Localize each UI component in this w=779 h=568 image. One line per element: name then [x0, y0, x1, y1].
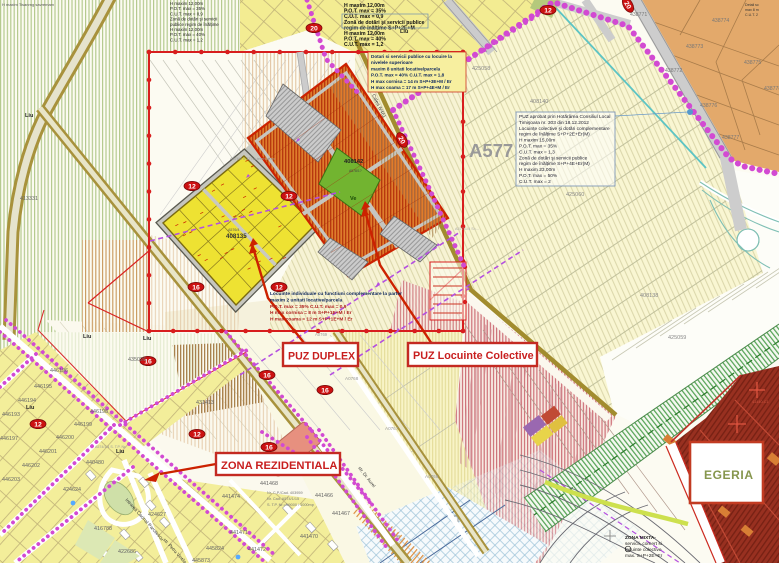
svg-text:P.O.T. max = 35% C.U.T. max: P.O.T. max = 35% C.U.T. max = 0,9 — [270, 304, 347, 310]
svg-text:Dotari si servicii publice cu: Dotari si servicii publice cu locuire la — [371, 54, 452, 59]
svg-text:Liu: Liu — [26, 405, 35, 411]
svg-text:Liu: Liu — [116, 449, 125, 455]
svg-text:20: 20 — [310, 25, 318, 32]
svg-text:A577/1/4 S=...: A577/1/4 S=... — [455, 227, 479, 231]
svg-text:408140: 408140 — [530, 99, 548, 105]
svg-text:446202: 446202 — [22, 463, 40, 469]
svg-text:438771: 438771 — [630, 12, 647, 18]
svg-text:nivelele superioare: nivelele superioare — [371, 60, 413, 65]
svg-text:441472: 441472 — [248, 547, 266, 553]
svg-text:C.U.T. max = 2: C.U.T. max = 2 — [519, 179, 551, 185]
svg-text:16: 16 — [321, 387, 329, 394]
svg-text:441467: 441467 — [332, 511, 350, 517]
svg-text:Ve: Ve — [350, 196, 356, 202]
svg-text:425059: 425059 — [668, 335, 686, 341]
svg-text:A0768: A0768 — [345, 376, 359, 381]
svg-text:max. S+P+2E+Er: max. S+P+2E+Er — [625, 553, 663, 559]
svg-text:A0766: A0766 — [425, 474, 439, 479]
svg-text:regim de înălțime S+P+4E+Er(M): regim de înălțime S+P+4E+Er(M) — [519, 161, 590, 167]
svg-text:PUZ aprobat prin Hotărârea Con: PUZ aprobat prin Hotărârea Consiliul Loc… — [519, 114, 610, 120]
svg-text:max 8 m: max 8 m — [745, 8, 759, 12]
svg-text:16: 16 — [192, 284, 200, 291]
svg-text:Liu: Liu — [83, 334, 92, 340]
svg-text:P.O.T. max = 35%: P.O.T. max = 35% — [519, 144, 558, 150]
svg-text:416788: 416788 — [94, 526, 112, 532]
svg-text:PUZ Locuinte Colective: PUZ Locuinte Colective — [413, 350, 534, 362]
svg-text:446203: 446203 — [2, 477, 20, 483]
svg-text:446198: 446198 — [90, 409, 108, 415]
svg-text:12: 12 — [544, 7, 552, 14]
svg-text:S. T.P. Nr.=N9000 / 1000mp: S. T.P. Nr.=N9000 / 1000mp — [267, 503, 314, 507]
svg-text:C.U.T. max = 1,2: C.U.T. max = 1,2 — [344, 42, 383, 48]
svg-text:C.U.T. 2: C.U.T. 2 — [745, 13, 758, 17]
svg-text:438778: 438778 — [764, 86, 779, 92]
svg-text:H max coama = 17 m S+P+4E+M /: H max coama = 17 m S+P+4E+M / Er — [371, 85, 450, 90]
svg-text:435026: 435026 — [128, 357, 146, 363]
svg-text:A576/4 6,17 ha teren viran: A576/4 6,17 ha teren viran — [230, 157, 275, 161]
svg-text:Liu: Liu — [400, 29, 409, 35]
svg-text:446201: 446201 — [39, 449, 57, 455]
svg-text:12: 12 — [188, 183, 196, 190]
svg-text:12: 12 — [275, 284, 283, 291]
svg-text:Liu: Liu — [25, 113, 34, 119]
svg-text:P.O.T. max = 40% C.U.T. max: P.O.T. max = 40% C.U.T. max = 1,8 — [371, 73, 445, 78]
svg-text:424624: 424624 — [63, 487, 81, 493]
svg-text:Timişoara nr. 303 din 18.12.20: Timişoara nr. 303 din 18.12.2012 — [519, 120, 589, 126]
svg-text:441468: 441468 — [260, 481, 278, 487]
svg-text:12: 12 — [193, 431, 201, 438]
svg-text:446199: 446199 — [74, 422, 92, 428]
svg-text:maxim 2 unitati locative/parce: maxim 2 unitati locative/parcela — [270, 297, 343, 303]
svg-text:440480: 440480 — [86, 460, 104, 466]
svg-text:C.U.T. max = 1,3: C.U.T. max = 1,3 — [519, 149, 555, 155]
svg-text:H maxim 23,00m: H maxim 23,00m — [519, 167, 555, 173]
svg-text:PUZ DUPLEX: PUZ DUPLEX — [288, 351, 355, 363]
svg-text:438777: 438777 — [722, 135, 739, 141]
svg-text:438776: 438776 — [700, 103, 717, 109]
svg-text:Locuințe colective şi dotări c: Locuințe colective şi dotări complementa… — [519, 126, 610, 132]
svg-text:441474: 441474 — [222, 494, 240, 500]
svg-text:Liu: Liu — [143, 336, 152, 342]
svg-text:EGERIA: EGERIA — [704, 468, 754, 482]
svg-text:446197: 446197 — [0, 436, 18, 442]
svg-text:P.O.T. max = 50%: P.O.T. max = 50% — [519, 173, 558, 179]
svg-text:12: 12 — [285, 193, 293, 200]
svg-text:441471: 441471 — [230, 530, 248, 536]
svg-text:446196: 446196 — [50, 368, 68, 374]
svg-text:438774: 438774 — [712, 18, 729, 24]
svg-text:maxim 8 unitati locative/parce: maxim 8 unitati locative/parcela — [371, 66, 441, 71]
svg-text:Locuinte individuale cu functi: Locuinte individuale cu functiuni comple… — [270, 291, 402, 297]
svg-text:438772: 438772 — [665, 68, 682, 74]
svg-text:16: 16 — [263, 372, 271, 379]
svg-text:408138: 408138 — [640, 293, 658, 299]
svg-text:H max cornisa = 8 m S+P+1E+M /: H max cornisa = 8 m S+P+1E+M / Er — [270, 310, 352, 316]
svg-text:445873: 445873 — [192, 558, 210, 563]
svg-text:446195: 446195 — [34, 384, 52, 390]
svg-text:408142: 408142 — [344, 159, 363, 165]
svg-text:H maxim Tisanrng savremam: H maxim Tisanrng savremam — [2, 2, 55, 7]
svg-text:H max cornisa = 14 m S+P+3E+M: H max cornisa = 14 m S+P+3E+M / Er — [371, 79, 452, 84]
svg-text:A576/4: A576/4 — [228, 228, 239, 232]
svg-text:Detali sc: Detali sc — [745, 3, 759, 7]
svg-text:438773: 438773 — [686, 44, 703, 50]
svg-text:41440-C1: 41440-C1 — [752, 400, 769, 404]
svg-text:Zonă de dotări şi servicii pub: Zonă de dotări şi servicii publice — [519, 155, 588, 161]
svg-text:446200: 446200 — [56, 435, 74, 441]
svg-text:H maxim 15,00m: H maxim 15,00m — [519, 138, 555, 144]
svg-text:413331: 413331 — [20, 196, 38, 202]
svg-text:A0769: A0769 — [315, 332, 328, 337]
svg-text:ZONA MIXTA-: ZONA MIXTA- — [625, 535, 656, 541]
svg-text:408135: 408135 — [226, 233, 247, 240]
svg-text:431413: 431413 — [196, 400, 214, 406]
svg-text:424627: 424627 — [148, 512, 166, 518]
svg-text:servicii, comert si: servicii, comert si — [625, 541, 662, 547]
svg-text:Nr. Cad. A574/1/15: Nr. Cad. A574/1/15 — [267, 497, 299, 501]
svg-text:422686: 422686 — [118, 549, 136, 555]
svg-text:16: 16 — [265, 444, 273, 451]
svg-text:425060: 425060 — [566, 192, 584, 198]
svg-text:446194: 446194 — [18, 398, 36, 404]
svg-text:441470: 441470 — [300, 534, 318, 540]
svg-text:425058: 425058 — [472, 66, 490, 72]
svg-text:441466: 441466 — [315, 493, 333, 499]
svg-text:Nr. C.P./Cad. 403959: Nr. C.P./Cad. 403959 — [267, 491, 303, 495]
svg-text:445824: 445824 — [206, 546, 224, 552]
svg-text:A578/1?: A578/1? — [349, 169, 362, 173]
svg-text:A0767: A0767 — [385, 426, 399, 431]
svg-text:ZONA REZIDENTIALA: ZONA REZIDENTIALA — [221, 460, 337, 472]
svg-text:12: 12 — [34, 421, 42, 428]
svg-text:regim de înălțime S+P+2E+Er(M): regim de înălțime S+P+2E+Er(M) — [519, 132, 590, 138]
svg-text:A574/1/4 S. T.P. Nr.: A574/1/4 S. T.P. Nr. — [95, 445, 126, 449]
svg-text:438775: 438775 — [744, 60, 761, 66]
svg-text:446193: 446193 — [2, 412, 20, 418]
svg-text:C.U.T. max = 1,2: C.U.T. max = 1,2 — [170, 37, 203, 42]
svg-text:H max coama = 12 m S+P+1E+M /: H max coama = 12 m S+P+1E+M / Er — [270, 317, 353, 323]
svg-text:A577: A577 — [469, 140, 513, 161]
